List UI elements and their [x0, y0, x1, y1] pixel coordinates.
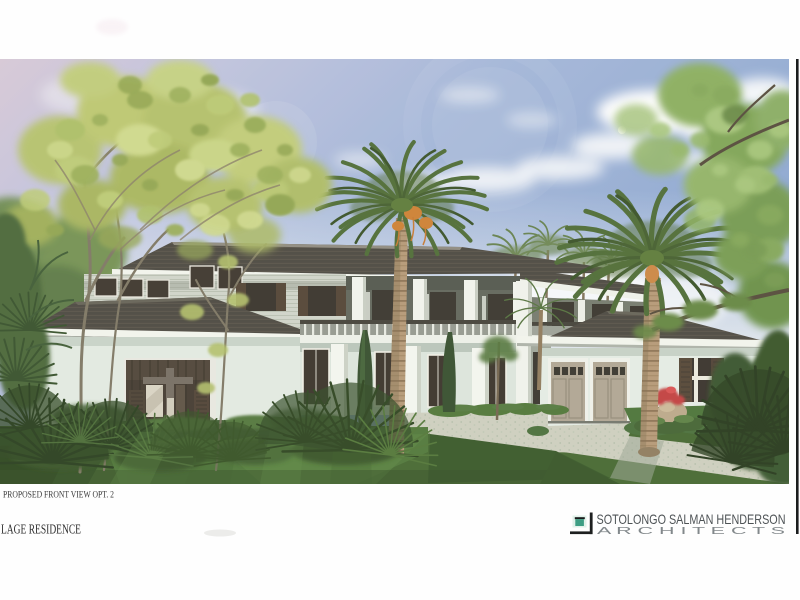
svg-text:PROPOSED FRONT VIEW OPT. 2: PROPOSED FRONT VIEW OPT. 2: [3, 490, 114, 500]
svg-text:LAGE RESIDENCE: LAGE RESIDENCE: [1, 522, 81, 537]
svg-text:A R C H I T E C T S: A R C H I T E C T S: [597, 526, 786, 537]
